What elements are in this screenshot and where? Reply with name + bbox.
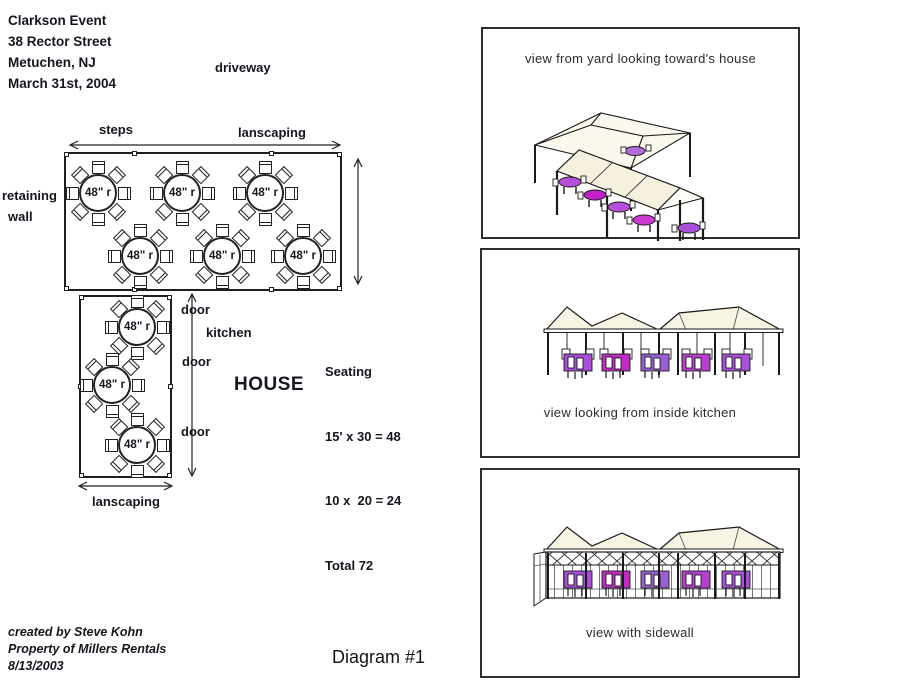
chair: [323, 250, 336, 263]
table-top: 48" r: [93, 366, 131, 404]
kitchen-label: kitchen: [206, 325, 252, 340]
seating-line-15x30: 15' x 30 = 48: [325, 426, 401, 448]
seating-line-10x20: 10 x 20 = 24: [325, 490, 401, 512]
landscaping-bottom-label: lanscaping: [92, 494, 160, 509]
steps-label: steps: [99, 122, 133, 137]
chair: [106, 405, 119, 418]
chair: [132, 379, 145, 392]
chair: [259, 161, 272, 174]
tent-pole-mark: [269, 287, 274, 292]
table-top: 48" r: [203, 237, 241, 275]
view-panel-sidewall-caption: view with sidewall: [482, 625, 798, 640]
tent-sidewall-view: [482, 470, 802, 680]
view-panel-kitchen-caption: view looking from inside kitchen: [482, 405, 798, 420]
event-name: Clarkson Event: [8, 10, 116, 31]
chair: [271, 250, 284, 263]
table-top: 48" r: [284, 237, 322, 275]
event-city: Metuchen, NJ: [8, 52, 116, 73]
chair: [157, 439, 170, 452]
chair: [160, 250, 173, 263]
chair: [131, 295, 144, 308]
chair: [157, 321, 170, 334]
chair: [105, 439, 118, 452]
chair: [297, 224, 310, 237]
diagram-number-label: Diagram #1: [332, 647, 425, 668]
chair: [242, 250, 255, 263]
chair: [80, 379, 93, 392]
driveway-label: driveway: [215, 60, 271, 75]
chair: [131, 413, 144, 426]
chair: [233, 187, 246, 200]
chair: [150, 187, 163, 200]
diagram-canvas: Clarkson Event 38 Rector Street Metuchen…: [0, 0, 917, 687]
chair: [176, 213, 189, 226]
tent-pole-mark: [337, 286, 342, 291]
table-top: 48" r: [246, 174, 284, 212]
chair: [134, 276, 147, 289]
door-label-3: door: [181, 424, 210, 439]
chair: [202, 187, 215, 200]
event-header: Clarkson Event 38 Rector Street Metuchen…: [8, 10, 116, 94]
view-panel-kitchen: view looking from inside kitchen: [480, 248, 800, 458]
credit-property: Property of Millers Rentals: [8, 641, 166, 658]
chair: [66, 187, 79, 200]
tent-pole-mark: [337, 152, 342, 157]
door-label-2: door: [182, 354, 211, 369]
chair: [131, 465, 144, 478]
credit-block: created by Steve Kohn Property of Miller…: [8, 624, 166, 675]
retaining-wall-label-line2: wall: [8, 209, 33, 224]
credit-date: 8/13/2003: [8, 658, 166, 675]
seating-title: Seating: [325, 361, 401, 383]
chair: [176, 161, 189, 174]
event-street: 38 Rector Street: [8, 31, 116, 52]
event-date: March 31st, 2004: [8, 73, 116, 94]
chair: [134, 224, 147, 237]
chair: [108, 250, 121, 263]
chair: [92, 161, 105, 174]
chair: [190, 250, 203, 263]
tent-pole-mark: [269, 151, 274, 156]
tent-pole-mark: [64, 286, 69, 291]
credit-author: created by Steve Kohn: [8, 624, 166, 641]
tent-pole-mark: [79, 295, 84, 300]
seating-total: Total 72: [325, 555, 401, 577]
door-label-1: door: [181, 302, 210, 317]
retaining-wall-label-line1: retaining: [2, 188, 57, 203]
chair: [216, 276, 229, 289]
table-top: 48" r: [118, 308, 156, 346]
tent-pole-mark: [167, 295, 172, 300]
tent-pole-mark: [132, 151, 137, 156]
tent-elevation-view: [482, 250, 802, 460]
chair: [259, 213, 272, 226]
chair: [216, 224, 229, 237]
table-top: 48" r: [121, 237, 159, 275]
chair: [105, 321, 118, 334]
chair: [92, 213, 105, 226]
chair: [131, 347, 144, 360]
chair: [118, 187, 131, 200]
table-top: 48" r: [79, 174, 117, 212]
view-panel-yard: view from yard looking toward's house: [481, 27, 800, 239]
tent-pole-mark: [167, 473, 172, 478]
house-label: HOUSE: [234, 374, 304, 396]
tent-pole-mark: [168, 384, 173, 389]
table-top: 48" r: [118, 426, 156, 464]
chair: [297, 276, 310, 289]
tent-isometric-view: [483, 29, 802, 241]
chair: [285, 187, 298, 200]
view-panel-sidewall: view with sidewall: [480, 468, 800, 678]
chair: [106, 353, 119, 366]
seating-summary: Seating 15' x 30 = 48 10 x 20 = 24 Total…: [325, 318, 401, 619]
tent-pole-mark: [64, 152, 69, 157]
landscaping-top-label: lanscaping: [238, 125, 306, 140]
table-top: 48" r: [163, 174, 201, 212]
tent-pole-mark: [79, 473, 84, 478]
